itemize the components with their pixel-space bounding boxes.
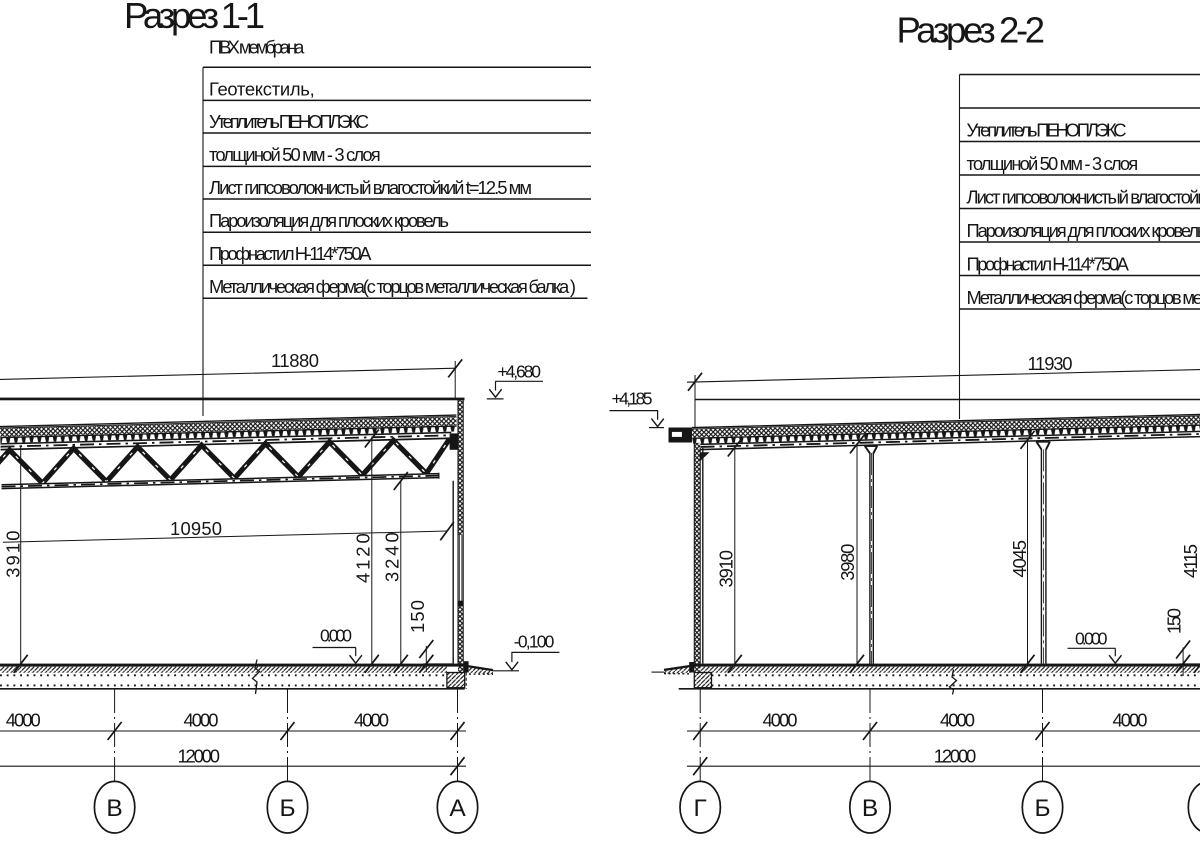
svg-text:4120: 4120	[352, 533, 373, 583]
svg-text:4045: 4045	[1009, 540, 1030, 578]
svg-text:+4,185: +4,185	[612, 389, 653, 409]
svg-text:0.000: 0.000	[1075, 629, 1108, 649]
svg-text:+4,680: +4,680	[498, 362, 542, 382]
svg-text:Металлическая ферма(с торцов м: Металлическая ферма(с торцов металлическ…	[209, 276, 576, 297]
svg-text:4115: 4115	[1180, 544, 1200, 578]
svg-text:Металлическая ферма(с торцов м: Металлическая ферма(с торцов металлическ…	[967, 287, 1200, 308]
svg-text:10950: 10950	[170, 518, 222, 539]
svg-text:Б: Б	[1034, 795, 1050, 822]
svg-text:толщиной 50 мм - 3 слоя: толщиной 50 мм - 3 слоя	[967, 153, 1139, 174]
svg-text:Лист гипсоволокнистый влагосто: Лист гипсоволокнистый влагостойкий t=12.…	[209, 177, 532, 198]
svg-text:Лист гипсоволокнистый влагосто: Лист гипсоволокнистый влагостойкий t=12.…	[967, 186, 1200, 207]
svg-text:В: В	[106, 795, 122, 822]
svg-text:3910: 3910	[716, 550, 737, 588]
svg-text:150: 150	[1164, 608, 1185, 634]
svg-text:Разрез 1-1: Разрез 1-1	[124, 0, 265, 36]
svg-text:Пароизоляция для плоских крове: Пароизоляция для плоских кровель	[967, 220, 1200, 241]
svg-text:-0,100: -0,100	[514, 631, 555, 651]
svg-text:Разрез 2-2: Разрез 2-2	[897, 10, 1046, 51]
svg-text:11930: 11930	[1028, 353, 1073, 374]
svg-text:4000: 4000	[6, 709, 41, 730]
svg-text:12000: 12000	[177, 745, 220, 766]
svg-text:4000: 4000	[354, 709, 389, 730]
svg-text:3980: 3980	[837, 544, 858, 581]
svg-text:12000: 12000	[934, 745, 977, 766]
svg-text:4000: 4000	[940, 709, 975, 730]
svg-text:Г: Г	[694, 795, 707, 822]
svg-text:150: 150	[407, 600, 428, 633]
svg-text:4000: 4000	[763, 709, 798, 730]
svg-text:Пароизоляция для плоских крове: Пароизоляция для плоских кровель	[209, 210, 449, 231]
svg-text:Профнастил Н-114*750А: Профнастил Н-114*750А	[209, 243, 372, 264]
svg-text:4000: 4000	[184, 709, 219, 730]
svg-text:А: А	[449, 795, 466, 822]
svg-text:4000: 4000	[1113, 709, 1148, 730]
svg-text:Б: Б	[279, 795, 295, 822]
svg-text:0.000: 0.000	[320, 626, 352, 646]
svg-text:Утеплитель ПЕНОПЛЭКС: Утеплитель ПЕНОПЛЭКС	[967, 119, 1127, 140]
svg-text:3240: 3240	[381, 532, 402, 582]
svg-text:Профнастил Н-114*750А: Профнастил Н-114*750А	[967, 253, 1130, 274]
svg-text:толщиной 50 мм - 3 слоя: толщиной 50 мм - 3 слоя	[209, 144, 381, 165]
svg-text:ПВХ мембрана: ПВХ мембрана	[209, 37, 305, 58]
svg-text:Геотекстиль,: Геотекстиль,	[209, 78, 315, 99]
svg-text:Утеплитель ПЕНОПЛЭКС: Утеплитель ПЕНОПЛЭКС	[209, 111, 369, 132]
svg-text:11880: 11880	[271, 350, 319, 371]
svg-text:В: В	[862, 795, 878, 822]
